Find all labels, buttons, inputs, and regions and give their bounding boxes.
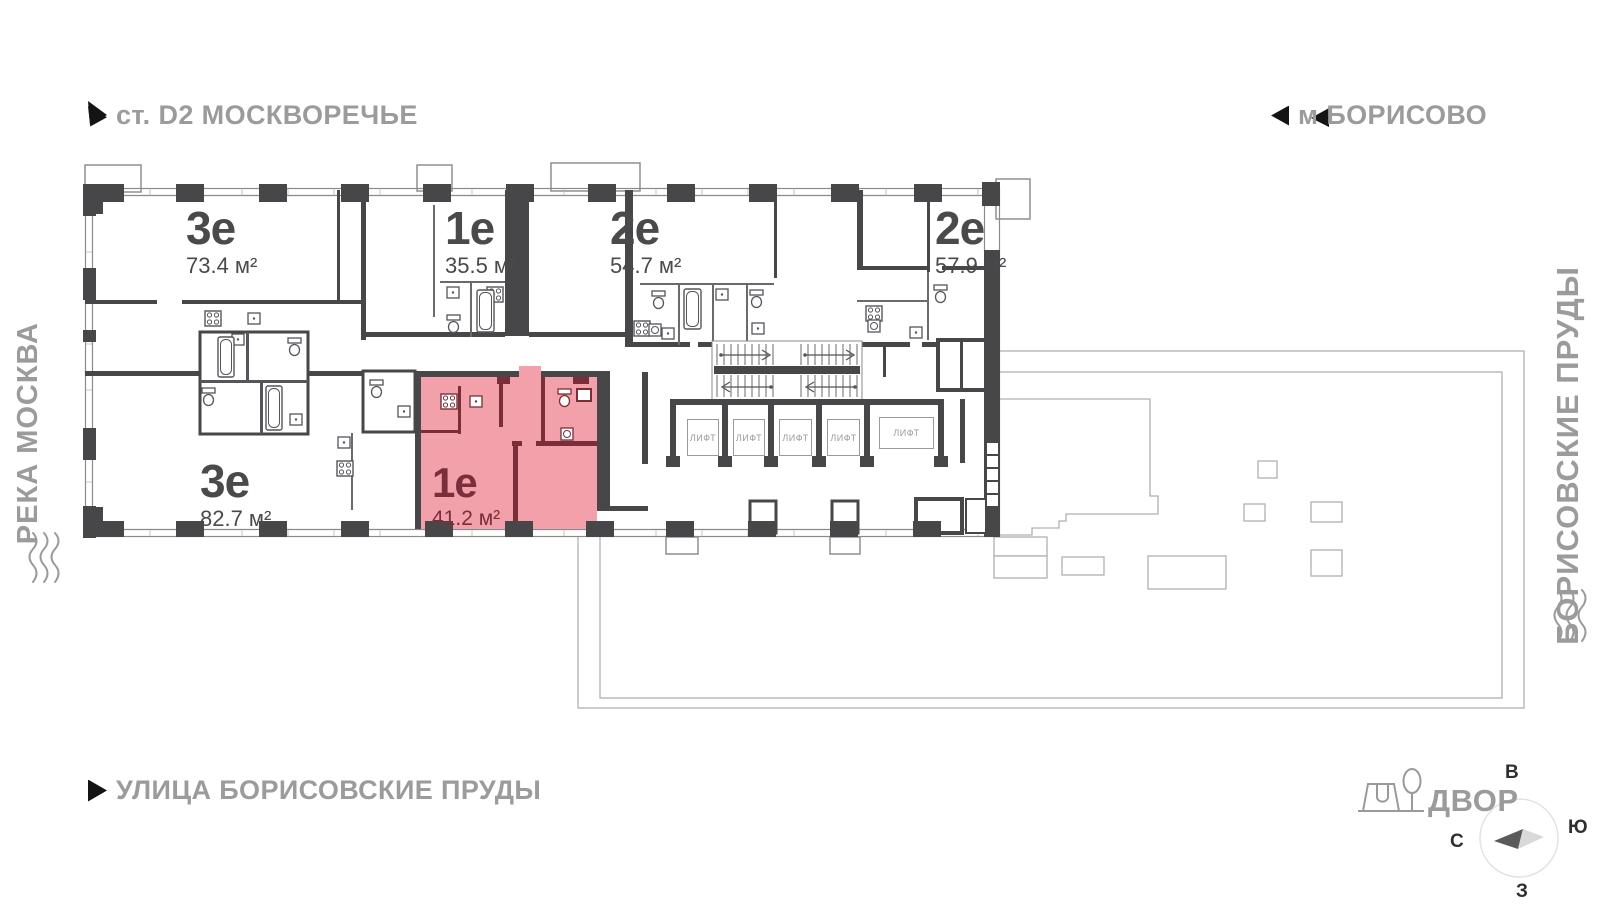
compass-south: Ю	[1568, 817, 1588, 839]
playground-icon	[1358, 769, 1424, 811]
street-label-text: УЛИЦА БОРИСОВСКИЕ ПРУДЫ	[116, 775, 541, 806]
compass-east: В	[1505, 762, 1519, 784]
elevator-label: ЛИФТ	[827, 419, 860, 456]
apartment-unit-3e-82[interactable]: 3е 82.7 м²	[200, 458, 271, 530]
metro-label: м БОРИСОВО	[1271, 100, 1487, 131]
metro-pointer-icon	[1271, 106, 1289, 126]
metro-label-text: м БОРИСОВО	[1298, 100, 1487, 131]
apartment-unit-1e-41-label[interactable]: 1е 41.2 м²	[432, 462, 500, 529]
elevator-label: ЛИФТ	[879, 417, 934, 449]
apartment-unit-2e-54[interactable]: 2е 54.7 м²	[610, 205, 681, 277]
compass-west: З	[1516, 881, 1528, 903]
elevator-label: ЛИФТ	[687, 419, 719, 456]
apartment-unit-2e-57[interactable]: 2е 57.9 м²	[935, 205, 1006, 277]
ponds-label: БОРИСОВСКИЕ ПРУДЫ	[1550, 266, 1586, 645]
elevator-label: ЛИФТ	[779, 419, 812, 456]
station-label: ст. D2 МОСКВОРЕЧЬЕ	[88, 100, 418, 131]
staircase	[712, 341, 862, 400]
station-pointer-icon	[88, 105, 107, 127]
apartment-unit-1e-35[interactable]: 1е 35.5 м²	[445, 205, 516, 277]
street-label: УЛИЦА БОРИСОВСКИЕ ПРУДЫ	[88, 775, 541, 806]
apartment-unit-3e-73[interactable]: 3е 73.4 м²	[186, 205, 257, 277]
elevator-label: ЛИФТ	[733, 419, 765, 456]
courtyard-label: ДВОР	[1428, 783, 1519, 819]
river-label: РЕКА МОСКВА	[12, 322, 45, 544]
floor-plan-page: ст. D2 МОСКВОРЕЧЬЕ м БОРИСОВО УЛИЦА БОРИ…	[0, 0, 1600, 920]
street-pointer-icon	[88, 780, 107, 802]
station-label-text: ст. D2 МОСКВОРЕЧЬЕ	[116, 100, 418, 131]
compass-north: С	[1450, 831, 1464, 853]
